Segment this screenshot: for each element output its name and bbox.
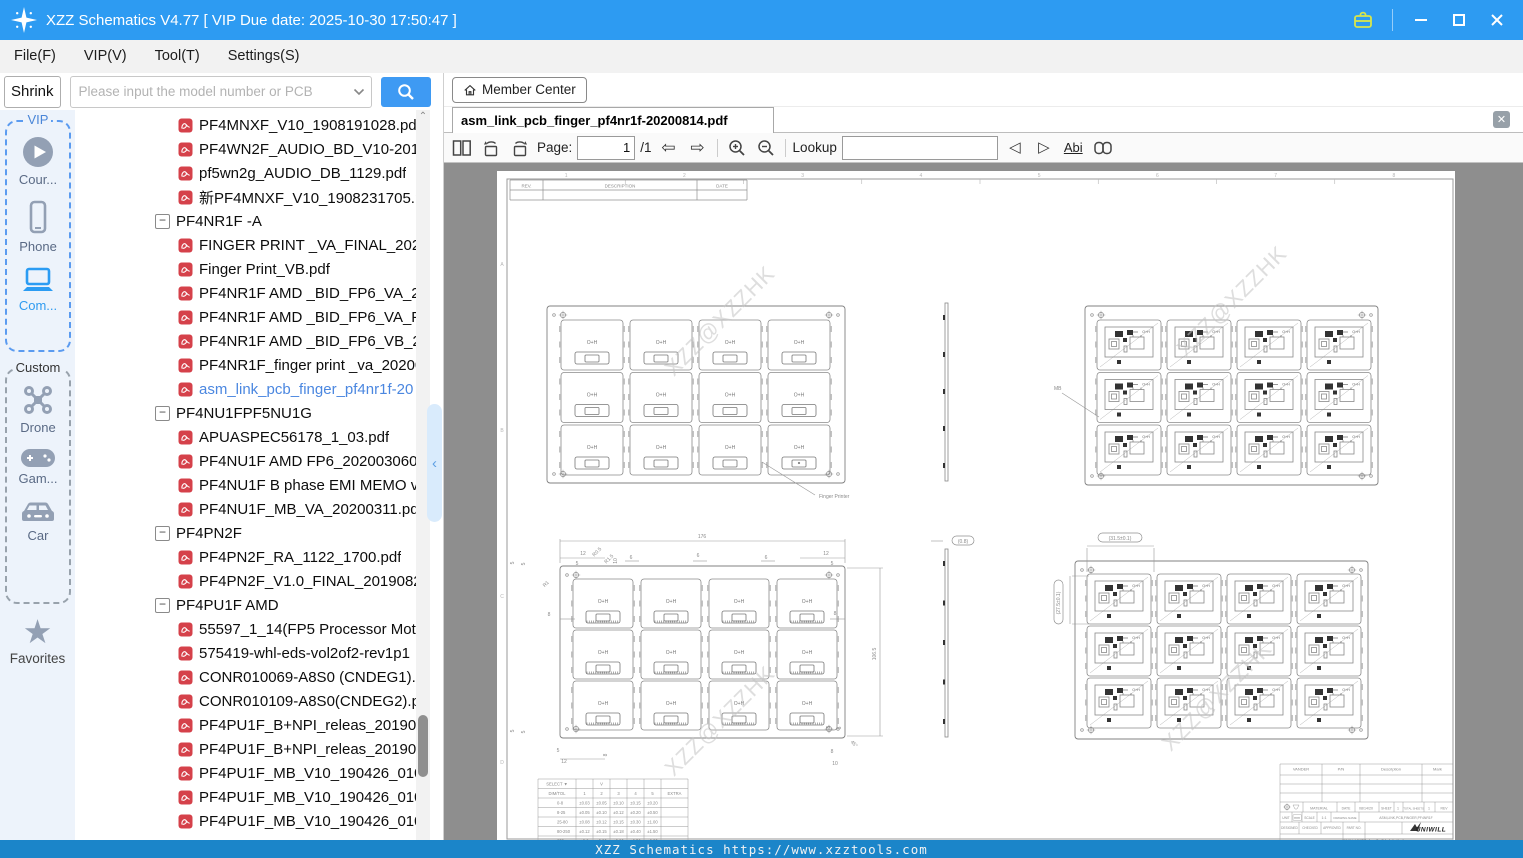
rotate-left-button[interactable] <box>479 137 503 159</box>
svg-text:MATERIAL: MATERIAL <box>1310 807 1328 811</box>
sidebar-item-label: Car <box>28 528 49 543</box>
sidebar-item-label: Com... <box>19 298 57 313</box>
tree-item-label: PF4NU1FPF5NU1G <box>176 405 312 422</box>
svg-text:5: 5 <box>1038 173 1041 179</box>
tree-item[interactable]: PF4NR1F AMD _BID_FP6_VA_20. <box>75 281 430 305</box>
svg-text:2: 2 <box>683 173 686 179</box>
svg-text:5: 5 <box>826 725 832 728</box>
svg-text:EXTRA: EXTRA <box>668 791 682 796</box>
svg-text:±0.40: ±0.40 <box>630 829 641 834</box>
svg-text:O+H: O+H <box>666 599 677 605</box>
sidebar-item-label: Favorites <box>10 651 66 666</box>
close-button[interactable] <box>1487 10 1507 30</box>
svg-text:O+H: O+H <box>1342 688 1350 692</box>
svg-text:±0.30: ±0.30 <box>630 820 641 825</box>
tree-item-label: PF4PN2F_RA_1122_1700.pdf <box>199 549 401 566</box>
tree-item-label: Finger Print_VB.pdf <box>199 261 330 278</box>
svg-text:O+H: O+H <box>1282 330 1290 334</box>
tree-item-label: PF4PU1F_MB_V10_190426_0102 <box>199 765 430 782</box>
sidebar-item-label: Phone <box>19 239 57 254</box>
search-row: Shrink <box>0 73 443 110</box>
svg-text:R0.5: R0.5 <box>591 546 603 558</box>
svg-text:(31.5±0.1): (31.5±0.1) <box>1109 536 1132 542</box>
svg-text:5: 5 <box>837 726 843 729</box>
next-match-button[interactable]: ▷ <box>1032 137 1056 159</box>
tree-item[interactable]: PF4WN2F_AUDIO_BD_V10-2019 <box>75 137 430 161</box>
svg-text:O+H: O+H <box>734 599 745 605</box>
svg-text:O+H: O+H <box>802 599 813 605</box>
pdf-icon <box>178 766 193 781</box>
pdf-icon <box>178 814 193 829</box>
svg-text:UNIWILL: UNIWILL <box>1416 827 1447 834</box>
svg-text:O+H: O+H <box>656 445 667 451</box>
sidebar-item-drone[interactable]: Drone <box>20 383 55 435</box>
pdf-icon <box>178 142 193 157</box>
svg-text:25-80: 25-80 <box>557 820 568 825</box>
tree-item[interactable]: PF4NR1F AMD _BID_FP6_VB_20. <box>75 329 430 353</box>
sidebar-item-label: Cour... <box>19 172 57 187</box>
tree-item[interactable]: CONR010069-A8S0 (CNDEG1).p <box>75 665 430 689</box>
svg-text:12: 12 <box>823 551 829 557</box>
svg-text:8: 8 <box>834 611 837 617</box>
svg-text:±1.00: ±1.00 <box>647 820 658 825</box>
prev-match-button[interactable]: ◁ <box>1003 137 1027 159</box>
svg-text:±0.05: ±0.05 <box>579 810 590 815</box>
toolbar-separator <box>717 139 718 157</box>
svg-text:O+H: O+H <box>587 340 598 346</box>
svg-text:O+H: O+H <box>598 650 609 656</box>
svg-text:±0.15: ±0.15 <box>596 829 607 834</box>
svg-text:VANDER: VANDER <box>1293 767 1309 772</box>
svg-text:ASM,LINK,PCB,FINGER,PF4NR1F: ASM,LINK,PCB,FINGER,PF4NR1F <box>1379 816 1433 820</box>
svg-text:08/14/20: 08/14/20 <box>1359 807 1373 811</box>
svg-text:10: 10 <box>832 761 838 767</box>
zoom-in-button[interactable] <box>725 137 749 159</box>
svg-text:PART NO.: PART NO. <box>1347 826 1362 830</box>
tree-item[interactable]: asm_link_pcb_finger_pf4nr1f-20 <box>75 377 430 401</box>
pdf-icon <box>178 262 193 277</box>
tree-folder[interactable]: −PF4NR1F -A <box>75 209 430 233</box>
svg-text:DIM/TOL: DIM/TOL <box>549 791 567 796</box>
collapse-panel-handle[interactable]: ‹ <box>427 404 442 522</box>
svg-text:45°: 45° <box>849 739 859 749</box>
svg-text:8: 8 <box>1392 173 1395 179</box>
svg-text:O+H: O+H <box>1212 435 1220 439</box>
tree-item[interactable]: FINGER PRINT _VA_FINAL_20200 <box>75 233 430 257</box>
svg-text:O+H: O+H <box>656 393 667 399</box>
svg-text:O+H: O+H <box>1342 584 1350 588</box>
svg-text:O+H: O+H <box>1272 584 1280 588</box>
maximize-button[interactable] <box>1449 10 1469 30</box>
tree-item-label: 55597_1_14(FP5 Processor Moth <box>199 621 424 638</box>
svg-text:O+H: O+H <box>666 650 677 656</box>
sidebar-item-favorites[interactable]: ★ Favorites <box>0 615 75 666</box>
file-tree: PF4MNXF_V10_1908191028.pdfPF4WN2F_AUDIO_… <box>75 110 430 840</box>
svg-text:DRAWING NAME: DRAWING NAME <box>1333 816 1356 820</box>
minimize-button[interactable] <box>1411 10 1431 30</box>
svg-text:6: 6 <box>630 555 633 561</box>
search-button[interactable] <box>381 77 431 107</box>
svg-text:O+H: O+H <box>1282 435 1290 439</box>
svg-text:V: V <box>600 782 603 787</box>
tree-item[interactable]: PF4NR1F AMD _BID_FP6_VA_FIN <box>75 305 430 329</box>
svg-text:Finger Printer: Finger Printer <box>819 494 850 500</box>
svg-text:O+H: O+H <box>1352 435 1360 439</box>
app-logo-icon <box>10 6 38 34</box>
svg-text:12: 12 <box>580 551 586 557</box>
two-page-view-button[interactable] <box>450 137 474 159</box>
svg-text:O+H: O+H <box>1212 383 1220 387</box>
svg-text:1:1: 1:1 <box>1322 816 1327 820</box>
svg-text:APPROVED: APPROVED <box>1323 826 1341 830</box>
svg-text:±0.12: ±0.12 <box>613 810 624 815</box>
tree-item[interactable]: PF4NU1F_MB_VA_20200311.pdf <box>75 497 430 521</box>
svg-text:O+H: O+H <box>1352 383 1360 387</box>
tree-item-label: PF4NU1F_MB_VA_20200311.pdf <box>199 501 423 518</box>
highlight-all-button[interactable] <box>1091 137 1115 159</box>
tree-item[interactable]: PF4PU1F_MB_V10_190426_0103 <box>75 785 430 809</box>
tree-item-label: PF4NR1F AMD _BID_FP6_VA_FIN <box>199 309 430 326</box>
tree-item-label: asm_link_pcb_finger_pf4nr1f-20 <box>199 381 413 398</box>
svg-text:80-250: 80-250 <box>557 829 571 834</box>
svg-text:5: 5 <box>831 561 834 567</box>
svg-text:O+H: O+H <box>734 650 745 656</box>
tree-item-label: PF4WN2F_AUDIO_BD_V10-2019 <box>199 141 427 158</box>
svg-text:O+H: O+H <box>1282 383 1290 387</box>
tree-item[interactable]: PF4MNXF_V10_1908191028.pdf <box>75 113 430 137</box>
next-page-button[interactable]: ⇨ <box>686 137 710 159</box>
svg-text:±0.08: ±0.08 <box>579 820 590 825</box>
svg-text:Mark: Mark <box>1433 767 1442 772</box>
svg-text:±0.18: ±0.18 <box>613 829 624 834</box>
pdf-icon <box>178 646 193 661</box>
svg-text:6: 6 <box>697 553 700 559</box>
svg-text:176: 176 <box>698 534 707 540</box>
svg-text:O+H: O+H <box>1142 383 1150 387</box>
collapse-node-icon[interactable]: − <box>155 526 170 541</box>
tab-bar: asm_link_pcb_finger_pf4nr1f-20200814.pdf… <box>444 107 1523 133</box>
svg-text:±1.50: ±1.50 <box>647 829 658 834</box>
play-icon <box>21 135 55 169</box>
category-sidebar: VIP Cour... Phone Com <box>0 110 75 840</box>
svg-text:XZZ@XZZHK: XZZ@XZZHK <box>1157 636 1277 756</box>
svg-text:7: 7 <box>1274 173 1277 179</box>
svg-text:3: 3 <box>617 791 620 796</box>
lookup-input[interactable] <box>842 136 998 160</box>
member-center-button[interactable]: Member Center <box>452 77 587 103</box>
tree-item[interactable]: PF4PU1F_MB_V10_190426_0102 <box>75 761 430 785</box>
svg-text:O+H: O+H <box>1142 330 1150 334</box>
svg-text:O+H: O+H <box>794 340 805 346</box>
svg-text:5: 5 <box>521 562 527 565</box>
tree-item-label: FINGER PRINT _VA_FINAL_20200 <box>199 237 430 254</box>
chevron-left-icon: ‹ <box>432 455 437 472</box>
pdf-icon <box>178 502 193 517</box>
license-briefcase-icon[interactable] <box>1352 9 1374 31</box>
tree-item-label: PF4PN2F_V1.0_FINAL_20190828 <box>199 573 430 590</box>
svg-text:±0.12: ±0.12 <box>579 829 590 834</box>
tree-item-label: PF4MNXF_V10_1908191028.pdf <box>199 117 421 134</box>
svg-text:B: B <box>500 428 504 434</box>
tree-item-label: PF4NR1F AMD _BID_FP6_VA_20. <box>199 285 430 302</box>
car-icon <box>20 499 56 525</box>
search-icon <box>396 82 416 102</box>
svg-text:MB: MB <box>1054 386 1062 392</box>
tree-item-label: PF4PU1F_MB_V10_190426_0103 <box>199 789 430 806</box>
svg-text:80-250: 80-250 <box>540 829 554 834</box>
pdf-icon <box>178 742 193 757</box>
tree-folder[interactable]: −PF4PN2F <box>75 521 430 545</box>
pdf-icon <box>178 310 193 325</box>
svg-text:4: 4 <box>919 173 922 179</box>
svg-text:5: 5 <box>557 748 560 754</box>
tree-item-label: APUASPEC56178_1_03.pdf <box>199 429 389 446</box>
sidebar-item-label: Drone <box>20 420 55 435</box>
menu-item-settingss[interactable]: Settings(S) <box>214 40 314 73</box>
svg-text:(27.5±0.1): (27.5±0.1) <box>1056 591 1062 614</box>
status-text: XZZ Schematics https://www.xzztools.com <box>595 842 928 857</box>
svg-text:O+H: O+H <box>1342 636 1350 640</box>
tree-item[interactable]: PF4PU1F_B+NPI_releas_2019062 <box>75 737 430 761</box>
tree-item-label: CONR010109-A8S0(CNDEG2).pc <box>199 693 427 710</box>
svg-text:mm: mm <box>1294 816 1300 820</box>
svg-text:R1: R1 <box>542 580 551 589</box>
svg-text:DESCRIPTION: DESCRIPTION <box>605 184 636 189</box>
tree-item[interactable]: PF4PU1F_B+NPI_releas_2019062 <box>75 713 430 737</box>
svg-text:P/N: P/N <box>1338 767 1345 772</box>
svg-text:D: D <box>500 760 504 766</box>
svg-text:SELECT ▼: SELECT ▼ <box>546 782 568 787</box>
svg-text:O+H: O+H <box>1202 584 1210 588</box>
svg-text:±0.20: ±0.20 <box>630 810 641 815</box>
svg-text:±0.15: ±0.15 <box>613 820 624 825</box>
svg-text:0-8: 0-8 <box>540 801 547 806</box>
svg-text:O+H: O+H <box>725 445 736 451</box>
vip-group-label: VIP <box>25 112 52 127</box>
menu-item-filef[interactable]: File(F) <box>0 40 70 73</box>
tree-item[interactable]: PF4PU1F_MB_V10_190426_0104 <box>75 809 430 833</box>
tree-item-label: 新PF4MNXF_V10_1908231705.pc <box>199 187 430 208</box>
shrink-button[interactable]: Shrink <box>4 76 61 108</box>
svg-text:25-80: 25-80 <box>540 820 551 825</box>
tree-item[interactable]: PF4PN2F_V1.0_FINAL_20190828 <box>75 569 430 593</box>
tree-item-label: PF4PU1F AMD <box>176 597 279 614</box>
window-title: XZZ Schematics V4.77 [ VIP Due date: 202… <box>46 12 457 29</box>
svg-text:O+H: O+H <box>656 340 667 346</box>
sidebar-item-computer[interactable]: Com... <box>19 267 57 313</box>
svg-text:SHEET: SHEET <box>1381 807 1392 811</box>
svg-text:UNIT: UNIT <box>1282 816 1289 820</box>
svg-text:O+H: O+H <box>1132 688 1140 692</box>
tree-item-label: pf5wn2g_AUDIO_DB_1129.pdf <box>199 165 406 182</box>
svg-text:±0.03: ±0.03 <box>579 801 590 806</box>
svg-text:±0.10: ±0.10 <box>613 801 624 806</box>
custom-group-label: Custom <box>13 360 64 375</box>
svg-text:XZZ@XZZHK: XZZ@XZZHK <box>1172 241 1292 361</box>
close-tab-button[interactable]: ✕ <box>1493 111 1510 128</box>
pdf-icon <box>178 118 193 133</box>
schematic-drawing: 12345678ABCDREV.DESCRIPTIONDATEO+HO+HO+H… <box>497 171 1455 841</box>
member-center-label: Member Center <box>482 82 576 97</box>
svg-text:(0.8): (0.8) <box>958 539 969 545</box>
svg-text:O+H: O+H <box>725 340 736 346</box>
pdf-icon <box>178 190 193 205</box>
svg-text:REV: REV <box>1441 807 1449 811</box>
tree-item[interactable]: Finger Print_VB.pdf <box>75 257 430 281</box>
laptop-icon <box>21 267 55 295</box>
svg-text:5: 5 <box>510 729 516 732</box>
svg-text:±0.10: ±0.10 <box>596 810 607 815</box>
phone-icon <box>21 200 55 236</box>
pdf-canvas[interactable]: 12345678ABCDREV.DESCRIPTIONDATEO+HO+HO+H… <box>444 163 1523 840</box>
zoom-out-button[interactable] <box>754 137 778 159</box>
tree-item[interactable]: PF4NR1F_finger print _va_20200 <box>75 353 430 377</box>
member-row: Member Center <box>444 73 1523 107</box>
tree-item-label: PF4PU1F_B+NPI_releas_2019062 <box>199 717 430 734</box>
tree-item[interactable]: 新PF4MNXF_V10_1908231705.pc <box>75 185 430 209</box>
toolbar-separator <box>785 139 786 157</box>
title-bar: XZZ Schematics V4.77 [ VIP Due date: 202… <box>0 0 1523 40</box>
pdf-icon <box>178 454 193 469</box>
tree-item-label: PF4NR1F -A <box>176 213 262 230</box>
svg-text:O+H: O+H <box>587 393 598 399</box>
scroll-thumb[interactable] <box>418 715 428 777</box>
pdf-icon <box>178 286 193 301</box>
tree-item[interactable]: PF4NU1F B phase EMI MEMO v. <box>75 473 430 497</box>
tab-label: asm_link_pcb_finger_pf4nr1f-20200814.pdf <box>453 113 728 128</box>
svg-text:106.5: 106.5 <box>872 648 878 661</box>
svg-text:6: 6 <box>1156 173 1159 179</box>
svg-text:5: 5 <box>651 791 654 796</box>
svg-text:6: 6 <box>765 555 768 561</box>
svg-text:8-25: 8-25 <box>557 810 566 815</box>
model-search-combo[interactable] <box>70 76 372 108</box>
drone-icon <box>21 383 55 417</box>
svg-text:O+H: O+H <box>1272 688 1280 692</box>
svg-text:±0.20: ±0.20 <box>647 801 658 806</box>
rotate-right-button[interactable] <box>508 137 532 159</box>
tree-folder[interactable]: −PF4PU1F AMD <box>75 593 430 617</box>
tree-item[interactable]: 55597_1_14(FP5 Processor Moth <box>75 617 430 641</box>
svg-text:C: C <box>500 594 504 600</box>
svg-text:1: 1 <box>565 173 568 179</box>
svg-text:±0.12: ±0.12 <box>596 820 607 825</box>
svg-text:REV.: REV. <box>521 184 531 189</box>
model-search-input[interactable] <box>71 84 347 99</box>
tree-item[interactable]: APUASPEC56178_1_03.pdf <box>75 425 430 449</box>
pdf-icon <box>178 670 193 685</box>
sidebar-item-car[interactable]: Car <box>20 499 56 543</box>
svg-text:5: 5 <box>576 561 579 567</box>
svg-text:5: 5 <box>510 561 516 564</box>
svg-text:O+H: O+H <box>802 650 813 656</box>
vip-group: VIP Cour... Phone Com <box>5 120 71 352</box>
pdf-icon <box>178 334 193 349</box>
svg-text:O+H: O+H <box>598 599 609 605</box>
pdf-icon <box>178 694 193 709</box>
tree-item[interactable]: 575419-whl-eds-vol2of2-rev1p1 <box>75 641 430 665</box>
lookup-label: Lookup <box>793 140 837 155</box>
svg-text:A: A <box>500 262 504 268</box>
svg-text:O+H: O+H <box>725 393 736 399</box>
pdf-page: 12345678ABCDREV.DESCRIPTIONDATEO+HO+HO+H… <box>497 171 1455 841</box>
svg-text:12: 12 <box>561 759 567 765</box>
pdf-icon <box>178 718 193 733</box>
sidebar-item-phone[interactable]: Phone <box>19 200 57 254</box>
tree-item-label: PF4NU1F AMD FP6_2020030609 <box>199 453 426 470</box>
page-input[interactable] <box>577 136 635 160</box>
tree-item-label: PF4NR1F_finger print _va_20200 <box>199 357 423 374</box>
svg-text:O+H: O+H <box>666 701 677 707</box>
chevron-down-icon[interactable] <box>347 88 371 96</box>
tree-item[interactable]: PF4NU1F AMD FP6_2020030609 <box>75 449 430 473</box>
svg-text:TOTAL SHEETS: TOTAL SHEETS <box>1403 807 1424 811</box>
svg-text:O+H: O+H <box>1132 636 1140 640</box>
svg-text:3: 3 <box>801 173 804 179</box>
prev-page-button[interactable]: ⇦ <box>657 137 681 159</box>
svg-text:O+H: O+H <box>1352 330 1360 334</box>
match-case-button[interactable]: Abi <box>1061 140 1086 155</box>
tree-item-label: PF4PU1F_MB_V10_190426_0104 <box>199 813 430 830</box>
svg-text:1: 1 <box>1397 807 1399 811</box>
sidebar-item-label: Gam... <box>18 471 57 486</box>
svg-text:±0.15: ±0.15 <box>630 801 641 806</box>
svg-text:O+H: O+H <box>794 445 805 451</box>
svg-text:XZZ@XZZHK: XZZ@XZZHK <box>660 261 780 381</box>
menu-bar: File(F)VIP(V)Tool(T)Settings(S) <box>0 40 1523 74</box>
page-label: Page: <box>537 140 572 155</box>
svg-text:10: 10 <box>613 558 619 564</box>
svg-text:8: 8 <box>603 753 609 756</box>
svg-text:CHECKED: CHECKED <box>1302 826 1318 830</box>
home-icon <box>463 83 477 97</box>
menu-item-vipv[interactable]: VIP(V) <box>70 40 141 73</box>
collapse-node-icon[interactable]: − <box>155 214 170 229</box>
pdf-icon <box>178 574 193 589</box>
tree-item-label: PF4PU1F_B+NPI_releas_2019062 <box>199 741 430 758</box>
pdf-icon <box>178 382 193 397</box>
svg-text:8: 8 <box>831 749 834 755</box>
sidebar-item-courses[interactable]: Cour... <box>19 135 57 187</box>
viewer-toolbar: Page: /1 ⇦ ⇨ Lookup ◁ ▷ Abi <box>444 133 1523 163</box>
pdf-icon <box>178 478 193 493</box>
tree-item-label: PF4PN2F <box>176 525 242 542</box>
svg-text:2: 2 <box>600 791 603 796</box>
titlebar-separator <box>1392 9 1393 31</box>
document-tab[interactable]: asm_link_pcb_finger_pf4nr1f-20200814.pdf <box>452 107 774 133</box>
collapse-node-icon[interactable]: − <box>155 598 170 613</box>
tree-item-label: CONR010069-A8S0 (CNDEG1).p <box>199 669 424 686</box>
tree-item[interactable]: pf5wn2g_AUDIO_DB_1129.pdf <box>75 161 430 185</box>
collapse-node-icon[interactable]: − <box>155 406 170 421</box>
menu-item-toolt[interactable]: Tool(T) <box>141 40 214 73</box>
svg-text:8: 8 <box>548 612 551 618</box>
svg-text:O+H: O+H <box>587 445 598 451</box>
scroll-up-arrow[interactable]: ⌃ <box>416 110 430 124</box>
svg-text:O+H: O+H <box>1142 435 1150 439</box>
pdf-icon <box>178 790 193 805</box>
tree-item[interactable]: PF4PN2F_RA_1122_1700.pdf <box>75 545 430 569</box>
viewer-panel: Member Center asm_link_pcb_finger_pf4nr1… <box>444 73 1523 840</box>
sidebar-item-game[interactable]: Gam... <box>18 448 57 486</box>
tree-item[interactable]: CONR010109-A8S0(CNDEG2).pc <box>75 689 430 713</box>
svg-text:1: 1 <box>583 791 586 796</box>
pdf-icon <box>178 166 193 181</box>
svg-text:1: 1 <box>1428 807 1430 811</box>
svg-text:O+H: O+H <box>1202 636 1210 640</box>
tree-folder[interactable]: −PF4NU1FPF5NU1G <box>75 401 430 425</box>
svg-text:O+H: O+H <box>802 701 813 707</box>
